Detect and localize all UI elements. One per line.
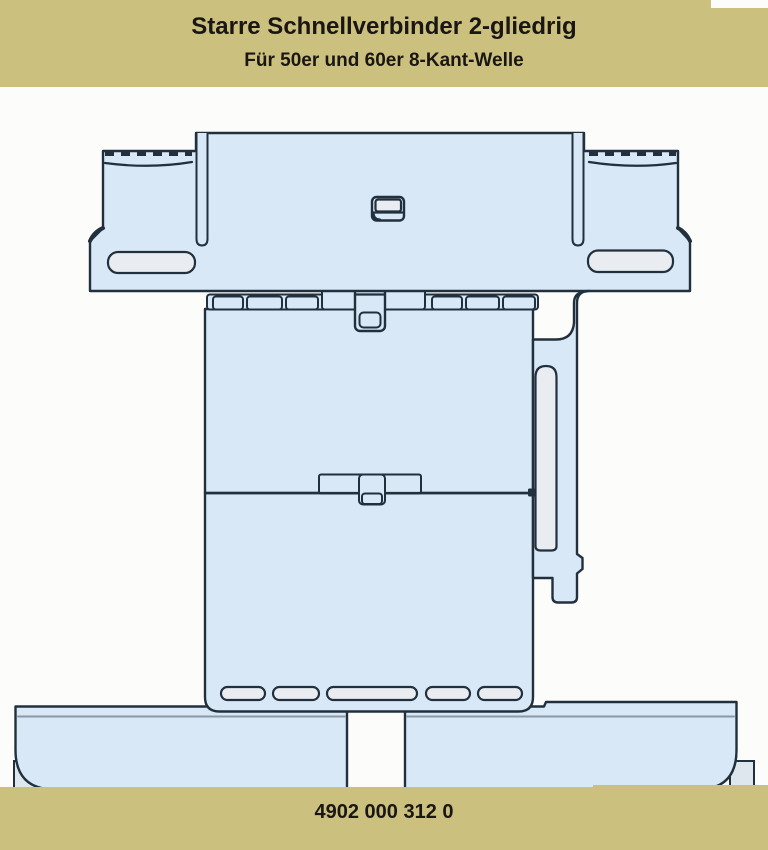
guide-slot xyxy=(536,366,557,551)
top-bracket xyxy=(90,133,690,291)
vent-slot-5 xyxy=(478,687,522,700)
right-vertical-slot xyxy=(573,133,584,246)
header-corner-notch xyxy=(711,0,768,8)
page-title: Starre Schnellverbinder 2-gliedrig xyxy=(0,0,768,41)
right-mounting-slot xyxy=(588,251,673,273)
header-banner: Starre Schnellverbinder 2-gliedrig Für 5… xyxy=(0,0,768,87)
hinge-knuckle xyxy=(466,297,499,310)
vent-slot-4 xyxy=(426,687,470,700)
bottom-link-plate xyxy=(205,493,533,712)
hinge-pin-nub xyxy=(528,489,536,497)
page-subtitle: Für 50er und 60er 8-Kant-Welle xyxy=(0,41,768,72)
footer-banner: 4902 000 312 0 xyxy=(0,787,768,850)
vent-slot-2 xyxy=(273,687,319,700)
left-vertical-slot xyxy=(197,133,208,246)
vent-slot-3 xyxy=(327,687,417,700)
catalog-page: Starre Schnellverbinder 2-gliedrig Für 5… xyxy=(0,0,768,850)
hinge-knuckle xyxy=(247,297,282,310)
base-rail-right xyxy=(405,702,737,790)
hinge-knuckle xyxy=(213,297,243,310)
side-guide-arm xyxy=(528,291,589,603)
hinge-knuckle xyxy=(503,297,535,310)
left-mounting-slot xyxy=(108,252,195,273)
hinge-knuckle xyxy=(286,297,318,310)
vent-slot-1 xyxy=(221,687,265,700)
connector-technical-drawing xyxy=(0,0,768,850)
base-rail-left xyxy=(16,707,348,790)
center-clip xyxy=(372,197,404,221)
product-number: 4902 000 312 0 xyxy=(0,787,768,824)
hinge-knuckle xyxy=(432,297,462,310)
middle-link-plate xyxy=(205,309,533,493)
